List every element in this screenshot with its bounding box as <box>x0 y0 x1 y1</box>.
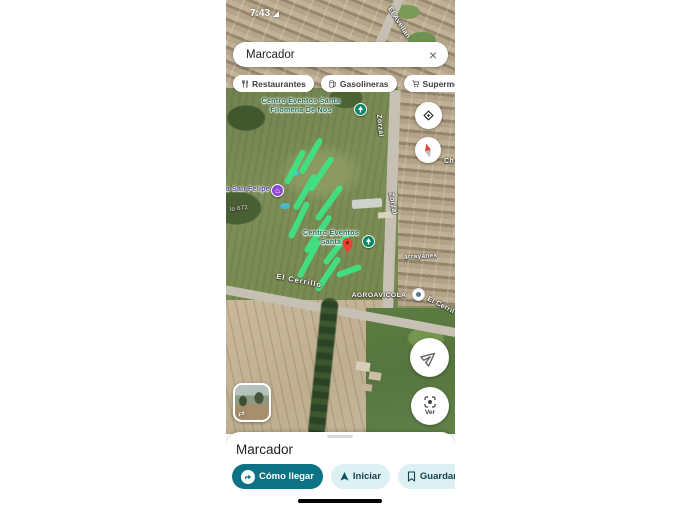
map-building <box>369 371 382 381</box>
search-bar[interactable]: Marcador × <box>233 42 448 67</box>
navigation-arrow-icon <box>418 346 442 370</box>
chip-label: Supermercados <box>423 79 455 89</box>
directions-icon <box>241 470 255 484</box>
map-layers-button[interactable] <box>415 102 442 129</box>
poi-label-line: Centro Eventos Santa <box>256 97 346 106</box>
gas-station-icon <box>329 80 337 88</box>
business-poi-pin[interactable] <box>412 288 425 301</box>
save-label: Guardar <box>420 471 455 482</box>
poi-label-agroavicola[interactable]: AGROAVICOLA <box>343 292 415 299</box>
dropped-pin-marker[interactable] <box>342 238 353 253</box>
search-input[interactable]: Marcador <box>246 49 429 61</box>
poi-label-eventos-top[interactable]: Centro Eventos Santa Filomena De Nos <box>256 97 346 115</box>
chip-supermarkets[interactable]: Supermercados <box>404 75 455 92</box>
restaurant-icon <box>241 80 249 88</box>
start-navigation-button[interactable]: Iniciar <box>331 464 390 489</box>
compass-button[interactable] <box>415 137 441 163</box>
map-building <box>355 361 370 372</box>
network-signal-icon <box>273 11 279 17</box>
place-title: Marcador <box>236 442 293 457</box>
home-icon: ⌂ <box>275 186 280 196</box>
map-view[interactable]: El Avellan Zorzal Zorzal El Cerrillo El … <box>226 0 455 434</box>
home-poi-pin[interactable]: ⌂ <box>271 184 284 197</box>
home-indicator[interactable] <box>298 499 382 503</box>
screenshot-canvas: El Avellan Zorzal Zorzal El Cerrillo El … <box>0 0 680 510</box>
category-chips-row: Restaurantes Gasolineras Supermerca <box>226 75 455 92</box>
directions-button[interactable]: Cómo llegar <box>232 464 323 489</box>
tree-icon <box>365 238 372 245</box>
street-view-ver-button[interactable]: Ver <box>411 387 449 425</box>
poi-label-san-felipe[interactable]: a San Felipe <box>226 186 270 193</box>
tree-poi-pin[interactable] <box>362 235 375 248</box>
layers-icon <box>422 109 435 122</box>
poi-label-line: Filomena De Nos <box>256 106 346 115</box>
map-pool <box>280 203 290 209</box>
pan-arrows-icon: ⇄ <box>238 409 245 418</box>
clock-text: 7:43 <box>250 8 270 19</box>
place-actions-row: Cómo llegar Iniciar Guardar <box>232 464 455 489</box>
chip-label: Restaurantes <box>252 79 306 89</box>
my-location-navigate-button[interactable] <box>410 338 449 377</box>
street-view-thumbnail[interactable]: ⇄ <box>233 383 271 422</box>
phone-screen: El Avellan Zorzal Zorzal El Cerrillo El … <box>226 0 455 510</box>
chip-gas-stations[interactable]: Gasolineras <box>321 75 397 92</box>
start-label: Iniciar <box>353 471 381 482</box>
street-label-ch: Ch <box>444 158 454 165</box>
map-building <box>362 383 373 391</box>
ver-label: Ver <box>425 409 435 416</box>
status-bar: 7:43 <box>250 8 279 19</box>
chip-label: Gasolineras <box>340 79 389 89</box>
chip-restaurants[interactable]: Restaurantes <box>233 75 314 92</box>
bookmark-icon <box>407 471 416 482</box>
lens-frame-icon <box>424 396 436 408</box>
directions-label: Cómo llegar <box>259 471 314 482</box>
sheet-drag-handle[interactable] <box>327 435 353 438</box>
start-navigation-icon <box>340 472 349 481</box>
clear-search-icon[interactable]: × <box>429 48 437 62</box>
compass-needle-icon <box>420 141 435 158</box>
save-button[interactable]: Guardar <box>398 464 455 489</box>
tree-poi-pin[interactable] <box>354 103 367 116</box>
tree-icon <box>357 106 364 113</box>
supermarket-icon <box>412 80 420 88</box>
